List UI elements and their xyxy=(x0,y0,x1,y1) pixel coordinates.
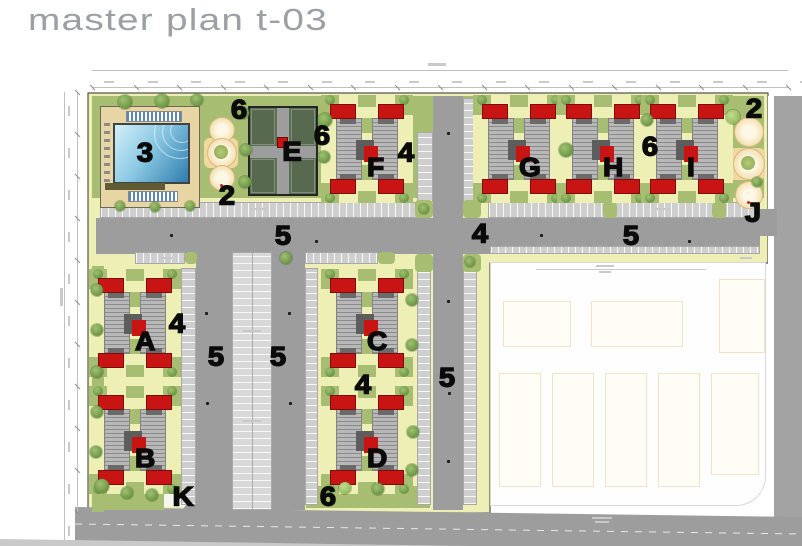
building-red xyxy=(330,353,356,368)
road-ns-west2 xyxy=(272,254,305,510)
building-pocket xyxy=(126,365,144,377)
building-red xyxy=(378,104,404,119)
building-pocket xyxy=(358,191,376,203)
tree-icon xyxy=(641,114,653,126)
building-dark xyxy=(378,293,394,298)
road-ns-west1 xyxy=(196,254,232,510)
dimension-text-mark xyxy=(68,148,70,158)
plan-label-6: 6 xyxy=(642,134,658,161)
future-building xyxy=(711,373,759,475)
tree-icon xyxy=(95,479,109,493)
plan-label-5: 5 xyxy=(270,344,286,371)
future-phase-lot xyxy=(490,262,766,506)
plan-label-J: J xyxy=(745,200,761,227)
tree-icon xyxy=(91,324,103,336)
road-text-mark xyxy=(740,257,752,259)
building-dark xyxy=(340,293,356,298)
building-red xyxy=(146,395,172,410)
building-block-D: D xyxy=(321,386,413,494)
building-tree xyxy=(645,193,655,203)
master-plan-page: master plan t-03 ABCDFGHI62E6462J5454554… xyxy=(0,0,802,546)
pool-loungers-bottom xyxy=(128,191,178,202)
building-red xyxy=(98,353,124,368)
tree-icon xyxy=(372,483,384,495)
plan-label-4: 4 xyxy=(169,311,185,338)
dimension-text-mark xyxy=(278,81,288,83)
plan-label-5: 5 xyxy=(623,223,639,250)
pool-colonnade xyxy=(104,120,110,182)
building-green xyxy=(362,118,372,133)
streetlight-dot xyxy=(205,312,208,315)
building-pocket xyxy=(510,95,528,107)
plan-label-5: 5 xyxy=(275,223,291,250)
building-pocket xyxy=(594,191,612,203)
double-parking-strip xyxy=(232,252,272,510)
tree-icon xyxy=(339,482,351,494)
dimension-text-mark xyxy=(68,442,70,452)
building-dark xyxy=(492,119,508,124)
streetlight-dot xyxy=(315,240,318,243)
building-red xyxy=(330,395,356,410)
building-red xyxy=(330,179,356,194)
tree-icon xyxy=(121,487,133,499)
building-dark xyxy=(146,410,162,415)
dimension-text-mark xyxy=(191,81,201,83)
dimension-text-mark xyxy=(68,232,70,242)
streetlight-dot xyxy=(447,132,450,135)
road-text-mark xyxy=(243,420,261,422)
dimension-text-mark xyxy=(365,81,375,83)
building-green xyxy=(362,292,372,307)
building-red xyxy=(378,395,404,410)
plan-label-4: 4 xyxy=(355,372,371,399)
future-building xyxy=(552,373,594,487)
dimension-line-top xyxy=(92,70,788,71)
plan-label-4: 4 xyxy=(398,140,414,167)
dimension-text-mark xyxy=(409,81,419,83)
road-text-mark xyxy=(250,208,266,210)
building-green xyxy=(598,118,608,133)
dimension-text-mark xyxy=(68,400,70,410)
tree-icon xyxy=(465,257,475,267)
building-green xyxy=(130,409,140,424)
tree-icon xyxy=(726,110,740,124)
dimension-text-mark xyxy=(626,81,636,83)
dimension-text-mark xyxy=(322,81,332,83)
building-block-C: C xyxy=(321,269,413,377)
building-dark xyxy=(108,410,124,415)
tree-icon xyxy=(185,201,195,211)
plan-label-2: 2 xyxy=(219,183,235,210)
future-building xyxy=(605,373,647,487)
tree-icon xyxy=(118,95,132,109)
building-tree xyxy=(719,193,729,203)
building-tree xyxy=(167,367,177,377)
streetlight-dot xyxy=(447,300,450,303)
building-dark xyxy=(576,119,592,124)
curb-island xyxy=(185,252,197,264)
pool-loungers-top xyxy=(126,111,182,122)
building-red xyxy=(698,104,724,119)
curb-island xyxy=(712,202,726,218)
building-red xyxy=(330,278,356,293)
tree-icon xyxy=(155,94,169,108)
dimension-text-mark xyxy=(68,316,70,326)
building-red xyxy=(530,104,556,119)
tree-icon xyxy=(407,426,419,438)
plan-label-3: 3 xyxy=(137,140,153,167)
plan-label-5: 5 xyxy=(208,344,224,371)
building-dark xyxy=(378,410,394,415)
dimension-text-mark xyxy=(68,526,70,536)
dimension-line-left xyxy=(64,92,65,540)
building-pocket xyxy=(358,95,376,107)
building-red xyxy=(482,179,508,194)
building-dark xyxy=(698,119,714,124)
lot-dimension-line xyxy=(536,269,706,270)
tree-icon xyxy=(191,94,203,106)
plan-label-6: 6 xyxy=(320,484,336,511)
building-red xyxy=(566,179,592,194)
parking-stalls xyxy=(417,132,433,202)
building-tree xyxy=(325,367,335,377)
building-dark xyxy=(108,293,124,298)
building-pocket xyxy=(510,191,528,203)
building-tree xyxy=(399,484,409,494)
tree-icon xyxy=(90,446,102,458)
building-pocket xyxy=(678,95,696,107)
streetlight-dot xyxy=(688,240,691,243)
dimension-text-mark xyxy=(428,63,446,66)
road-ns-center xyxy=(433,96,463,510)
building-dark xyxy=(146,293,162,298)
curb-island xyxy=(378,252,395,264)
building-block-G: G xyxy=(473,95,565,203)
streetlight-dot xyxy=(288,312,291,315)
dimension-text-mark xyxy=(496,81,506,83)
plan-label-E: E xyxy=(282,139,301,166)
dimension-text-mark xyxy=(68,274,70,284)
future-building xyxy=(503,301,571,347)
road-text-mark xyxy=(160,257,172,259)
parking-stalls xyxy=(181,268,196,505)
building-dark xyxy=(340,119,356,124)
dimension-text-mark xyxy=(104,81,114,83)
parking-stalls xyxy=(305,268,318,505)
fountain-green-center xyxy=(741,156,755,170)
future-building xyxy=(499,373,541,487)
dimension-text-mark xyxy=(68,190,70,200)
streetlight-dot xyxy=(447,460,450,463)
building-dark xyxy=(530,119,546,124)
dimension-text-mark xyxy=(713,81,723,83)
curb-island xyxy=(603,202,617,218)
streetlight-dot xyxy=(170,234,173,237)
streetlight-dot xyxy=(540,234,543,237)
building-red xyxy=(566,104,592,119)
tree-icon xyxy=(91,284,103,296)
dimension-text-mark xyxy=(68,106,70,116)
building-tree xyxy=(561,193,571,203)
dimension-text-mark xyxy=(757,81,767,83)
building-block-A: A xyxy=(89,269,181,377)
tree-icon xyxy=(239,176,251,188)
parking-stalls xyxy=(463,268,477,505)
dimension-text-mark xyxy=(583,81,593,83)
future-building xyxy=(719,279,765,353)
tree-icon xyxy=(240,144,252,156)
plan-label-6: 6 xyxy=(231,97,247,124)
building-tree xyxy=(477,193,487,203)
building-red xyxy=(650,179,676,194)
fountain-green-center xyxy=(214,145,228,159)
road-text-mark xyxy=(243,330,261,332)
streetlight-dot xyxy=(206,402,209,405)
plan-label-6: 6 xyxy=(314,123,330,150)
road-text-mark xyxy=(592,517,612,519)
building-tree xyxy=(399,367,409,377)
dimension-text-mark xyxy=(452,81,462,83)
building-dark xyxy=(660,119,676,124)
dimension-text-mark xyxy=(670,81,680,83)
future-building xyxy=(591,301,683,347)
building-dark xyxy=(340,410,356,415)
tree-icon xyxy=(559,143,573,157)
tree-icon xyxy=(318,151,330,163)
tree-icon xyxy=(406,339,418,351)
tree-icon xyxy=(280,252,292,264)
tree-icon xyxy=(115,201,125,211)
dimension-text-mark xyxy=(148,81,158,83)
tree-icon xyxy=(91,366,103,378)
curb-island xyxy=(415,254,433,272)
tree-icon xyxy=(91,406,103,418)
building-block-B: B xyxy=(89,386,181,494)
building-red xyxy=(650,104,676,119)
tree-icon xyxy=(406,464,418,476)
streetlight-dot xyxy=(289,402,292,405)
dimension-text-mark xyxy=(235,81,245,83)
building-pocket xyxy=(126,386,144,398)
pool-bar xyxy=(105,183,165,190)
building-dark xyxy=(614,119,630,124)
building-red xyxy=(378,278,404,293)
plan-label-5: 5 xyxy=(439,365,455,392)
plan-label-2: 2 xyxy=(746,96,762,123)
dimension-text-mark xyxy=(60,288,63,306)
building-tree xyxy=(325,193,335,203)
building-pocket xyxy=(678,191,696,203)
plan-label-K: K xyxy=(172,484,193,511)
tree-icon xyxy=(419,204,429,214)
building-pocket xyxy=(126,269,144,281)
dimension-text-mark xyxy=(68,484,70,494)
parking-row xyxy=(305,252,378,264)
building-red xyxy=(146,278,172,293)
future-building xyxy=(658,373,700,487)
building-green xyxy=(682,118,692,133)
tree-icon xyxy=(150,202,160,212)
dimension-text-mark xyxy=(68,358,70,368)
tree-icon xyxy=(146,489,158,501)
building-pocket xyxy=(358,269,376,281)
building-red xyxy=(614,104,640,119)
road-text-mark xyxy=(595,521,609,523)
building-dark xyxy=(378,119,394,124)
road-text-mark xyxy=(655,208,671,210)
dimension-text-mark xyxy=(539,81,549,83)
building-red xyxy=(482,104,508,119)
building-green xyxy=(130,292,140,307)
tree-icon xyxy=(752,177,762,187)
tree-icon xyxy=(406,294,418,306)
building-pocket xyxy=(594,95,612,107)
building-red xyxy=(698,179,724,194)
parking-stalls xyxy=(417,268,431,505)
building-green xyxy=(362,409,372,424)
building-tree xyxy=(399,193,409,203)
building-red xyxy=(330,104,356,119)
building-green xyxy=(514,118,524,133)
plan-label-4: 4 xyxy=(472,221,488,248)
